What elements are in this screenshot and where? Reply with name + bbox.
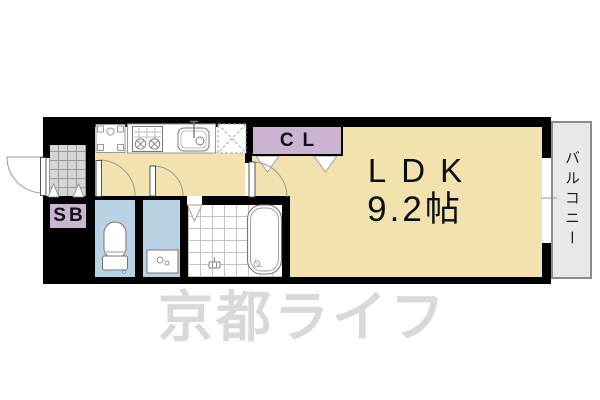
shoebox-label: SB	[53, 205, 85, 227]
wall-right-lower	[542, 243, 551, 279]
closet-label: CL	[280, 130, 323, 152]
ldk-name: LDK	[300, 152, 530, 190]
shoebox-box: SB	[48, 202, 88, 230]
floorplan-canvas: バルコニー CL SB LDK 9.2帖	[0, 0, 600, 400]
balcony-window-opening	[542, 158, 551, 243]
ldk-room-label: LDK 9.2帖	[300, 152, 530, 230]
stove-icon	[133, 127, 163, 152]
wall-toilet-washbasin	[135, 196, 143, 284]
balcony-area: バルコニー	[551, 121, 592, 279]
entrance-genkan-tile	[49, 144, 86, 197]
wall-entrance-right-strip	[86, 117, 95, 198]
entry-door-icon	[7, 157, 46, 196]
washer-pan-icon	[96, 125, 125, 153]
bathroom-door-opening	[187, 196, 202, 205]
balcony-label: バルコニー	[561, 150, 582, 250]
kitchen-corridor-floor	[95, 152, 245, 198]
ldk-size: 9.2帖	[300, 190, 530, 230]
wall-bathroom-right	[282, 196, 290, 284]
wall-washbasin-bathroom	[180, 196, 188, 284]
wall-right-upper	[542, 121, 551, 158]
toilet-room-floor	[95, 200, 135, 277]
refrigerator-space-icon	[218, 124, 246, 153]
watermark-text: 京都ライフ	[158, 272, 448, 352]
bathroom-floor	[188, 205, 282, 277]
kitchen-counter	[128, 124, 216, 153]
washbasin-room-floor	[143, 200, 180, 277]
